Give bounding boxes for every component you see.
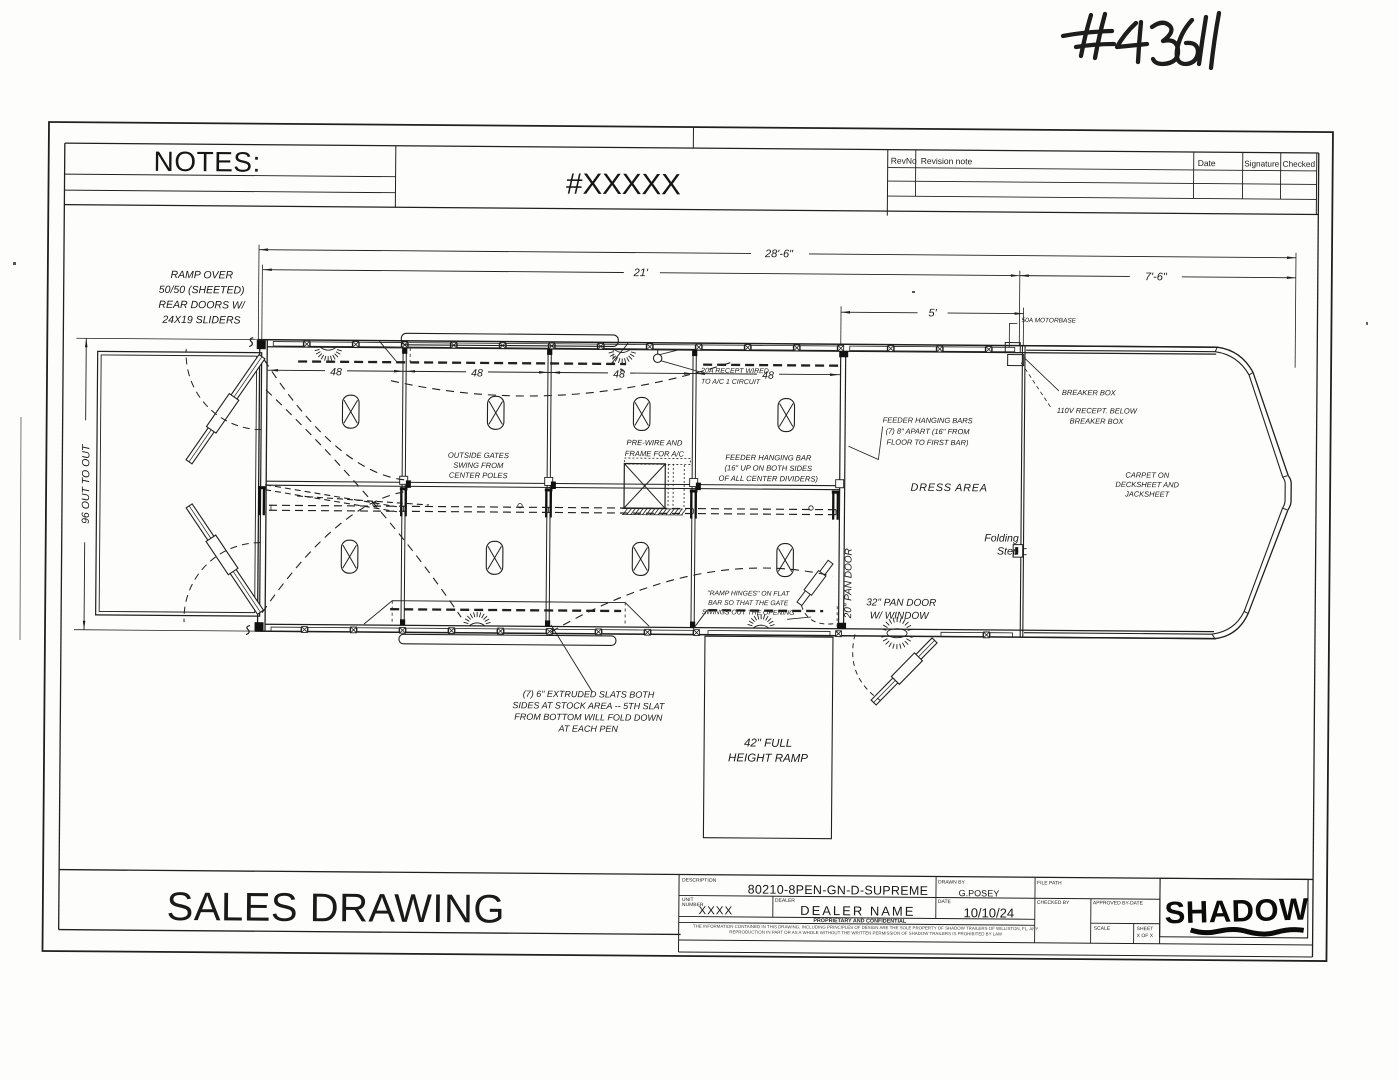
svg-text:APPROVED BY-DATE: APPROVED BY-DATE <box>1093 900 1144 906</box>
svg-text:FRAME FOR A/C: FRAME FOR A/C <box>625 449 685 458</box>
svg-text:NOTES:: NOTES: <box>153 146 260 178</box>
svg-text:OF ALL CENTER DIVIDERS): OF ALL CENTER DIVIDERS) <box>718 474 818 484</box>
svg-text:DEALER: DEALER <box>775 898 795 904</box>
svg-text:BREAKER BOX: BREAKER BOX <box>1062 388 1117 397</box>
svg-text:28'-6": 28'-6" <box>764 248 794 260</box>
svg-text:10/10/24: 10/10/24 <box>963 905 1014 920</box>
svg-text:FEEDER HANGING BAR: FEEDER HANGING BAR <box>725 453 812 463</box>
svg-text:48: 48 <box>330 366 342 378</box>
svg-text:(7) 8" APART (16" FROM: (7) 8" APART (16" FROM <box>886 427 971 437</box>
svg-text:32" PAN DOOR: 32" PAN DOOR <box>866 597 936 609</box>
svg-text:(7) 6" EXTRUDED SLATS BOTH: (7) 6" EXTRUDED SLATS BOTH <box>523 689 655 700</box>
svg-text:OUTSIDE GATES: OUTSIDE GATES <box>448 451 509 460</box>
svg-text:X OF X: X OF X <box>1137 933 1154 939</box>
svg-text:BAR SO THAT THE GATE: BAR SO THAT THE GATE <box>708 600 789 608</box>
svg-text:RAMP OVER: RAMP OVER <box>170 269 233 281</box>
svg-text:CHECKED BY: CHECKED BY <box>1037 900 1070 906</box>
svg-text:Signature: Signature <box>1244 159 1280 168</box>
svg-text:50A MOTORBASE: 50A MOTORBASE <box>1021 317 1076 324</box>
svg-text:Checked: Checked <box>1283 160 1316 169</box>
svg-text:110V RECEPT. BELOW: 110V RECEPT. BELOW <box>1057 406 1138 416</box>
svg-text:G.POSEY: G.POSEY <box>959 888 1000 898</box>
svg-text:80210-8PEN-GN-D-SUPREME: 80210-8PEN-GN-D-SUPREME <box>748 883 929 898</box>
svg-text:20" PAN DOOR: 20" PAN DOOR <box>843 548 855 619</box>
svg-text:Date: Date <box>1198 158 1216 168</box>
svg-text:HEIGHT RAMP: HEIGHT RAMP <box>728 752 808 765</box>
svg-text:PRE-WIRE AND: PRE-WIRE AND <box>627 438 683 447</box>
svg-text:#XXXXX: #XXXXX <box>566 168 681 202</box>
svg-text:5': 5' <box>928 307 937 319</box>
svg-text:21': 21' <box>633 267 649 279</box>
svg-text:CARPET ON: CARPET ON <box>1125 470 1169 479</box>
svg-text:RevNo: RevNo <box>891 156 917 166</box>
svg-text:24X19 SLIDERS: 24X19 SLIDERS <box>161 314 240 327</box>
svg-text:50/50 (SHEETED): 50/50 (SHEETED) <box>159 284 245 297</box>
svg-text:FROM BOTTOM WILL FOLD DOWN: FROM BOTTOM WILL FOLD DOWN <box>514 712 663 723</box>
svg-text:XXXX: XXXX <box>698 905 733 917</box>
svg-text:SWINGS OUT THE OPENING: SWINGS OUT THE OPENING <box>702 609 795 617</box>
svg-text:SWING FROM: SWING FROM <box>453 461 504 470</box>
svg-text:96 OUT TO OUT: 96 OUT TO OUT <box>80 443 93 524</box>
svg-text:DECKSHEET AND: DECKSHEET AND <box>1115 480 1179 490</box>
svg-text:42" FULL: 42" FULL <box>744 737 792 749</box>
svg-text:FILE PATH: FILE PATH <box>1037 880 1062 886</box>
svg-text:CENTER POLES: CENTER POLES <box>449 471 508 480</box>
svg-text:SALES DRAWING: SALES DRAWING <box>166 885 505 932</box>
svg-text:AT EACH PEN: AT EACH PEN <box>558 724 619 734</box>
svg-text:SIDES AT STOCK AREA -- 5TH SLA: SIDES AT STOCK AREA -- 5TH SLAT <box>512 700 666 711</box>
svg-text:DRESS AREA: DRESS AREA <box>911 482 988 495</box>
svg-text:Revision note: Revision note <box>921 156 973 166</box>
svg-text:Folding: Folding <box>984 532 1019 544</box>
svg-text:DESCRIPTION: DESCRIPTION <box>682 877 717 883</box>
svg-text:"RAMP HINGES" ON FLAT: "RAMP HINGES" ON FLAT <box>707 590 790 598</box>
svg-text:48: 48 <box>471 367 483 379</box>
svg-text:DATE: DATE <box>938 899 952 905</box>
svg-text:SHEET: SHEET <box>1137 926 1154 932</box>
svg-text:DRAWN BY: DRAWN BY <box>938 880 965 886</box>
svg-text:DEALER NAME: DEALER NAME <box>800 903 915 919</box>
svg-text:SHADOW: SHADOW <box>1164 892 1309 931</box>
svg-text:JACKSHEET: JACKSHEET <box>1124 489 1171 498</box>
svg-text:REAR DOORS W/: REAR DOORS W/ <box>158 299 246 312</box>
svg-text:FLOOR TO FIRST BAR): FLOOR TO FIRST BAR) <box>887 438 970 448</box>
svg-text:FEEDER HANGING BARS: FEEDER HANGING BARS <box>883 416 973 426</box>
svg-text:(16" UP ON BOTH SIDES: (16" UP ON BOTH SIDES <box>724 463 812 473</box>
svg-text:W/ WINDOW: W/ WINDOW <box>870 610 931 621</box>
svg-text:7'-6": 7'-6" <box>1145 271 1168 283</box>
svg-text:SCALE: SCALE <box>1094 926 1111 932</box>
svg-text:20A RECEPT WIRED: 20A RECEPT WIRED <box>700 368 769 376</box>
svg-text:TO A/C 1 CIRCUIT: TO A/C 1 CIRCUIT <box>701 379 761 386</box>
svg-text:BREAKER BOX: BREAKER BOX <box>1070 417 1125 426</box>
svg-text:Step: Step <box>997 545 1019 557</box>
